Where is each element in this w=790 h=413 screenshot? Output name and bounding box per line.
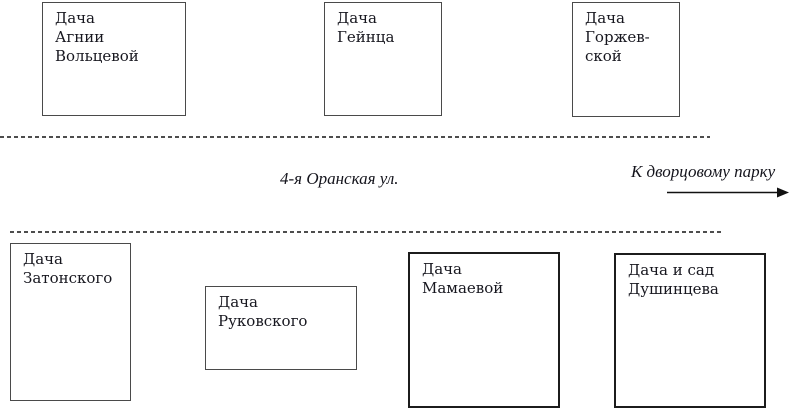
dacha-mamaevoy-box: Дача Мамаевой (408, 252, 560, 408)
street-name-label: 4-я Оранская ул. (280, 169, 399, 189)
dacha-rukovskogo-box: Дача Руковского (205, 286, 357, 370)
street-edge-north (0, 136, 710, 138)
dacha-i-sad-dushintseva-box: Дача и сад Душинцева (614, 253, 766, 408)
right-arrow-icon (667, 186, 789, 199)
street-edge-south (10, 231, 722, 233)
dacha-zatonskogo-box: Дача Затонского (10, 243, 131, 401)
dacha-geyntsa-box: Дача Гейнца (324, 2, 442, 116)
dacha-agnii-voltsevoy-box: Дача Агнии Вольцевой (42, 2, 186, 116)
dacha-gorzhevskoy-box: Дача Горжев- ской (572, 2, 680, 117)
street-plan: Дача Агнии Вольцевой Дача Гейнца Дача Го… (0, 0, 790, 413)
direction-label: К дворцовому парку (631, 162, 775, 182)
